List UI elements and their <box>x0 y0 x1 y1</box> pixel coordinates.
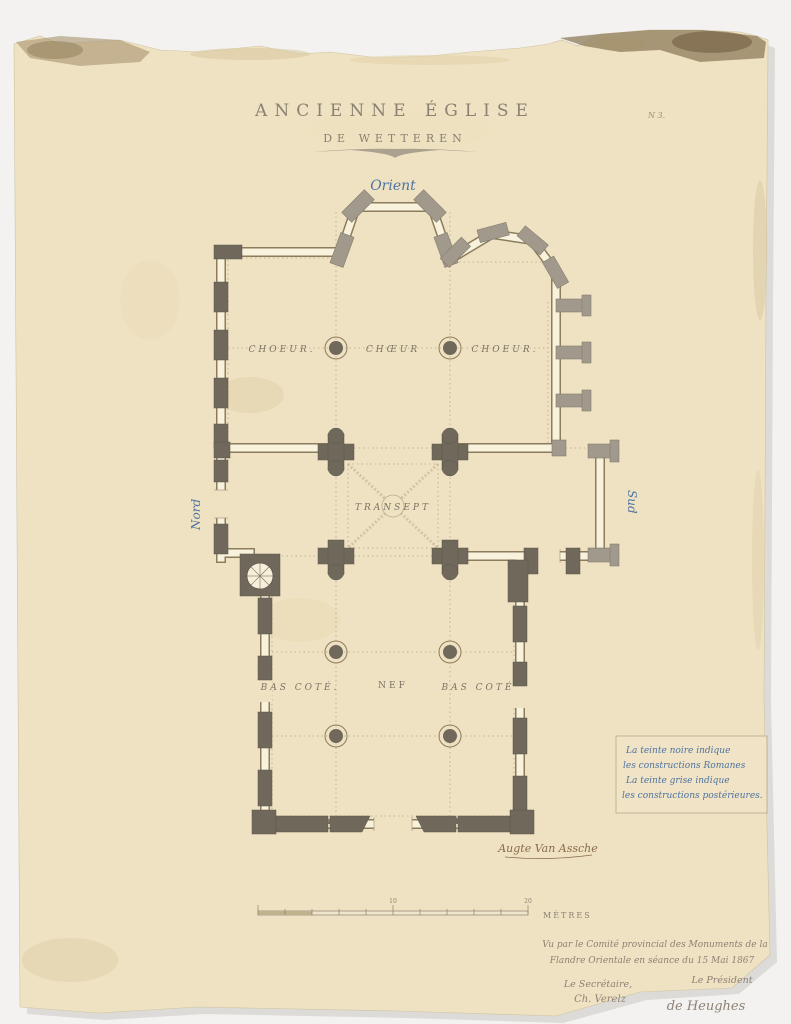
spiral-stair <box>240 554 280 596</box>
label-nef: NEF <box>378 681 408 691</box>
label-choeur-right: CHOEUR. <box>472 345 539 355</box>
scale-tick-10: 10 <box>389 898 397 905</box>
label-choeur-left: CHOEUR. <box>249 345 316 355</box>
label-bas-cote-left: BAS COTÉ. <box>260 681 340 693</box>
president-title: Le Président <box>690 975 752 986</box>
page-subtitle: DE WETTEREN <box>323 132 467 145</box>
legend-line-2: les constructions Romanes <box>623 761 746 771</box>
drawing-canvas: ANCIENNE ÉGLISE DE WETTEREN N 3. <box>0 0 791 1024</box>
plate-number: N 3. <box>647 111 665 120</box>
legend-line-4: les constructions postérieures. <box>622 790 763 801</box>
secretary-signature: Ch. Verelz <box>574 994 627 1005</box>
scanned-drawing-page: { "page": { "title_line1": "ANCIENNE ÉGL… <box>0 0 791 1024</box>
architect-signature-text: Augte Van Assche <box>497 842 598 855</box>
label-transept: TRANSEPT <box>355 503 431 513</box>
secretary-title: Le Secrétaire, <box>563 979 632 990</box>
label-bas-cote-right: BAS COTÉ <box>441 681 515 693</box>
page-title: ANCIENNE ÉGLISE <box>254 100 535 121</box>
legend-box: La teinte noire indique les construction… <box>616 736 767 813</box>
approval-line-1: Vu par le Comité provincial des Monument… <box>542 939 767 950</box>
legend-line-1: La teinte noire indique <box>625 746 730 756</box>
label-choeur-center: CHŒUR <box>366 345 420 355</box>
label-nord: Nord <box>189 499 203 531</box>
scale-tick-20: 20 <box>524 898 532 905</box>
scale-unit: MÈTRES <box>543 911 592 920</box>
legend-line-3: La teinte grise indique <box>625 776 730 786</box>
president-signature: de Heughes <box>667 999 746 1014</box>
label-orient: Orient <box>370 178 416 194</box>
label-sud: Sud <box>625 490 639 514</box>
approval-line-2: Flandre Orientale en séance du 15 Mai 18… <box>549 955 755 966</box>
